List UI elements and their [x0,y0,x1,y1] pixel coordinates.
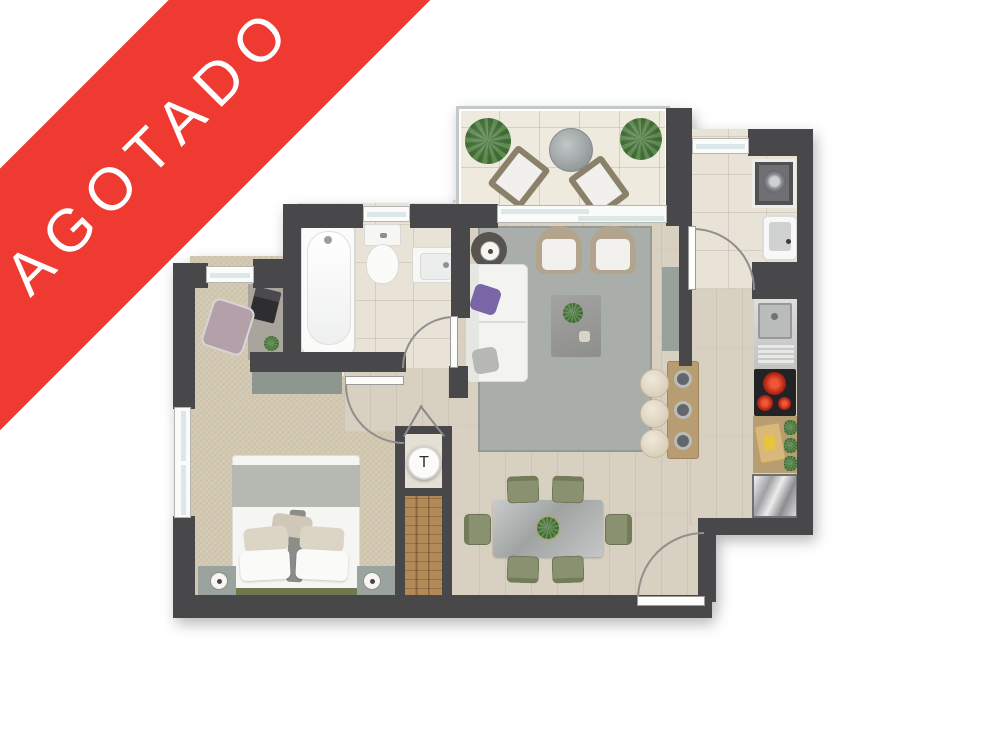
dining-chair [605,514,632,545]
burner-icon [757,395,773,411]
flush-button-icon [380,233,387,238]
wall [449,366,468,398]
armchair [536,226,582,274]
coffee-table-decor [579,331,590,342]
toilet-tank [364,224,401,246]
burner-icon [763,372,786,395]
laundry-door [688,226,696,290]
cutting-board [754,422,786,464]
dining-chair [552,475,585,503]
breakfast-bar [667,361,699,459]
kitchen-sink-unit [754,299,798,369]
double-bed [232,455,360,602]
dining-centerpiece [537,517,559,539]
sink-bowl [758,303,792,339]
drainboard [758,343,794,365]
sofa [466,264,528,382]
laundry-window [692,138,749,154]
armchair [590,226,636,274]
duct-shaft-badge: T [407,446,441,480]
duct-shaft-label: T [419,454,429,472]
cooktop [754,369,796,416]
laundry-tub [762,215,798,261]
terrace-plant-icon [465,118,511,164]
dining-chair [552,555,585,583]
shaft-wall [442,430,452,494]
bar-stool [640,429,669,458]
bar-stool [640,369,669,398]
laundry-tub-basin [769,222,791,251]
bar-stool [640,399,669,428]
bedroom-top-window [206,266,254,283]
bed-blanket [232,465,360,507]
bathtub-drain-icon [324,236,332,244]
herbs-icon [784,438,797,453]
gray-pillow [471,346,500,375]
armchair-cushion [596,239,630,270]
prep-counter [753,416,798,473]
wall-left [173,516,195,600]
toilet-bowl [366,244,399,284]
nightstand-lamp-icon [210,572,228,590]
fridge [752,474,798,518]
dining-table [493,500,603,557]
wall-bottom [173,595,712,618]
herbs-icon [784,420,797,435]
washer-drum-icon [763,170,786,193]
bed-pillow [295,549,348,582]
place-setting [674,401,692,419]
armchair-cushion [542,239,576,270]
tub-drain-icon [786,239,791,244]
bathtub [300,222,356,356]
living-sliding-window [497,205,667,223]
table-lamp-icon [480,241,500,261]
wall [173,263,208,288]
dining-chair [464,514,491,545]
bedroom-side-window [174,407,191,518]
bathroom-door [450,316,458,368]
island-cabinet [662,267,679,351]
wall-laundry-kitchen [752,262,797,299]
washing-machine [752,159,796,208]
wall [410,204,498,228]
dining-chair [507,555,540,583]
wall-bathroom-left [283,204,301,358]
entrance-door [637,596,705,606]
closet-interior [404,496,443,598]
wall-terrace-pillar [666,108,692,226]
sink-drain-icon [771,313,778,320]
bathroom-window [363,206,410,222]
burner-icon [778,397,791,410]
floorplan-scene: T AGOTADO [0,0,1000,750]
coffee-table [551,295,601,357]
faucet-icon [443,262,449,268]
bedroom-door [345,376,404,385]
place-setting [674,432,692,450]
nightstand-lamp-icon [363,572,381,590]
dresser [252,370,342,394]
herbs-icon [784,456,797,471]
bed-pillow [239,549,291,582]
cheese-icon [763,434,776,451]
sofa-cushion-seam [479,321,526,323]
dining-chair [507,475,540,503]
closet-wall [395,494,405,598]
coffee-table-plant-icon [563,303,583,323]
desk-plant-icon [264,336,279,351]
desk [248,284,284,360]
place-setting [674,370,692,388]
wall-right [797,129,813,535]
wall-bathroom-right [451,226,470,318]
bathtub-basin [307,231,351,345]
closet-wall [442,494,452,598]
terrace-plant-icon [620,118,662,160]
wall [250,352,406,372]
